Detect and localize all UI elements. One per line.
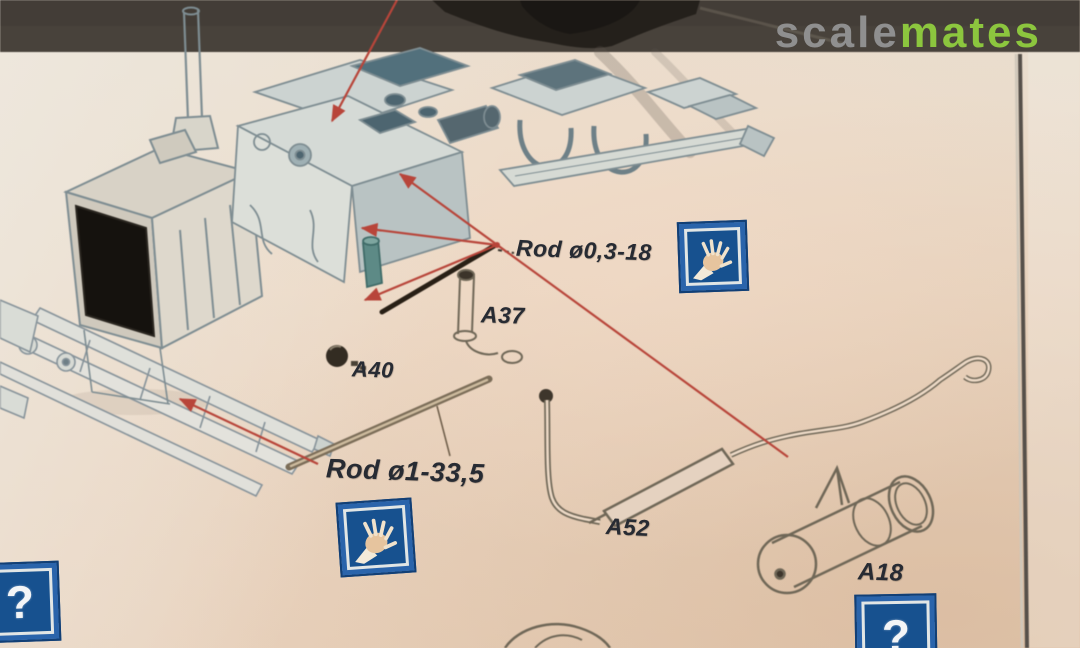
- assembly-diagram-artwork: [0, 0, 1080, 648]
- label-part-a40: A40: [352, 356, 395, 383]
- question-icon-box-right: ?: [854, 593, 937, 648]
- question-icon-box-left: ?: [0, 561, 61, 644]
- label-rod-0-3-18: Rod ø0,3-18: [516, 235, 653, 267]
- hand-icon: [349, 511, 402, 564]
- instruction-sheet-photo: scalemates Rod ø0,3-18 A37 A40 Rod ø1-33…: [0, 0, 1080, 648]
- tractor-engine-drawing: [232, 48, 500, 287]
- handmade-part-icon-box-1: [677, 220, 749, 293]
- page-fold-line: [1016, 52, 1080, 648]
- label-part-a18: A18: [858, 558, 904, 588]
- question-icon: ?: [5, 579, 35, 626]
- label-part-a37: A37: [481, 301, 526, 330]
- watermark-mates-text: mates: [900, 8, 1042, 57]
- watermark-scale-text: scale: [775, 8, 900, 57]
- muffler-a18-drawing: [758, 468, 942, 593]
- scalemates-watermark: scalemates: [775, 9, 1042, 57]
- question-icon: ?: [882, 613, 911, 648]
- exhaust-pipe-a52-drawing: [539, 358, 989, 526]
- bottom-cutoff-drawing: [505, 624, 610, 648]
- hand-icon: [689, 233, 737, 281]
- handmade-part-icon-box-2: [335, 497, 416, 577]
- label-rod-1-33-5: Rod ø1-33,5: [326, 453, 486, 490]
- rod-1-drawing: [289, 379, 489, 467]
- label-part-a52: A52: [605, 513, 650, 542]
